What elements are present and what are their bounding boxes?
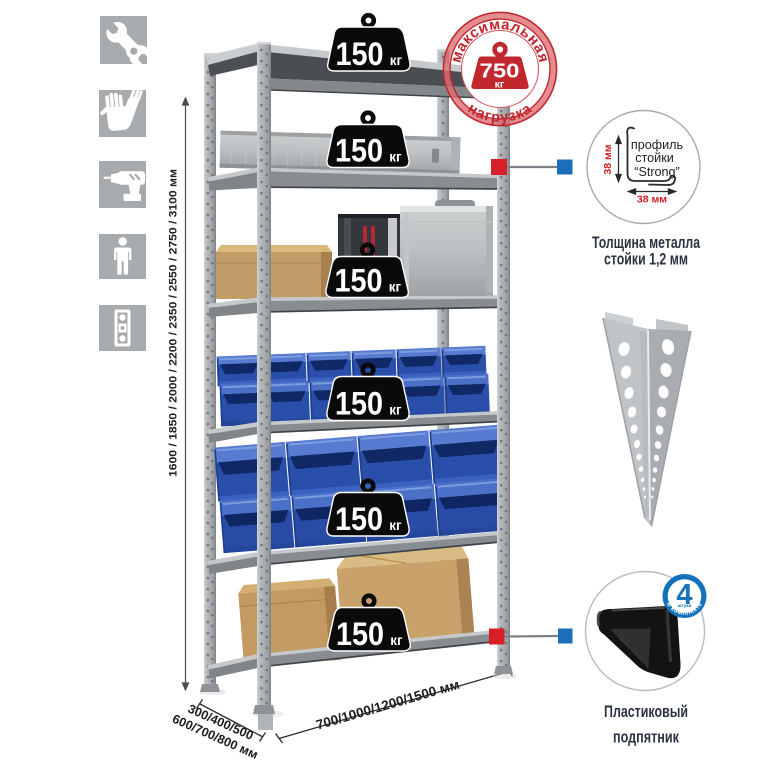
svg-text:150: 150	[335, 263, 383, 299]
svg-text:кг: кг	[389, 403, 402, 418]
svg-text:150: 150	[336, 36, 384, 72]
svg-text:кг: кг	[390, 53, 403, 68]
svg-text:кг: кг	[389, 280, 402, 295]
svg-text:штуки: штуки	[678, 603, 692, 608]
svg-text:кг: кг	[389, 518, 402, 533]
svg-text:Пластиковый: Пластиковый	[604, 702, 688, 721]
svg-text:стойки: стойки	[635, 151, 674, 165]
svg-text:кг: кг	[390, 633, 403, 648]
svg-text:150: 150	[335, 386, 383, 422]
svg-text:1600 / 1850 / 2000 / 2200 / 23: 1600 / 1850 / 2000 / 2200 / 2350 / 2550 …	[168, 169, 180, 477]
svg-text:38 мм: 38 мм	[602, 144, 614, 174]
svg-text:кг: кг	[389, 150, 402, 165]
svg-text:150: 150	[335, 133, 383, 169]
svg-text:профиль: профиль	[631, 138, 684, 152]
svg-text:“Strong”: “Strong”	[634, 165, 680, 179]
svg-text:кг: кг	[495, 79, 505, 91]
svg-text:Толщина металла: Толщина металла	[592, 234, 701, 252]
svg-text:150: 150	[336, 616, 384, 652]
svg-text:150: 150	[335, 501, 383, 537]
svg-text:38 мм: 38 мм	[637, 194, 667, 206]
svg-text:стойки 1,2 мм: стойки 1,2 мм	[604, 251, 688, 269]
svg-text:подпятник: подпятник	[613, 728, 679, 747]
